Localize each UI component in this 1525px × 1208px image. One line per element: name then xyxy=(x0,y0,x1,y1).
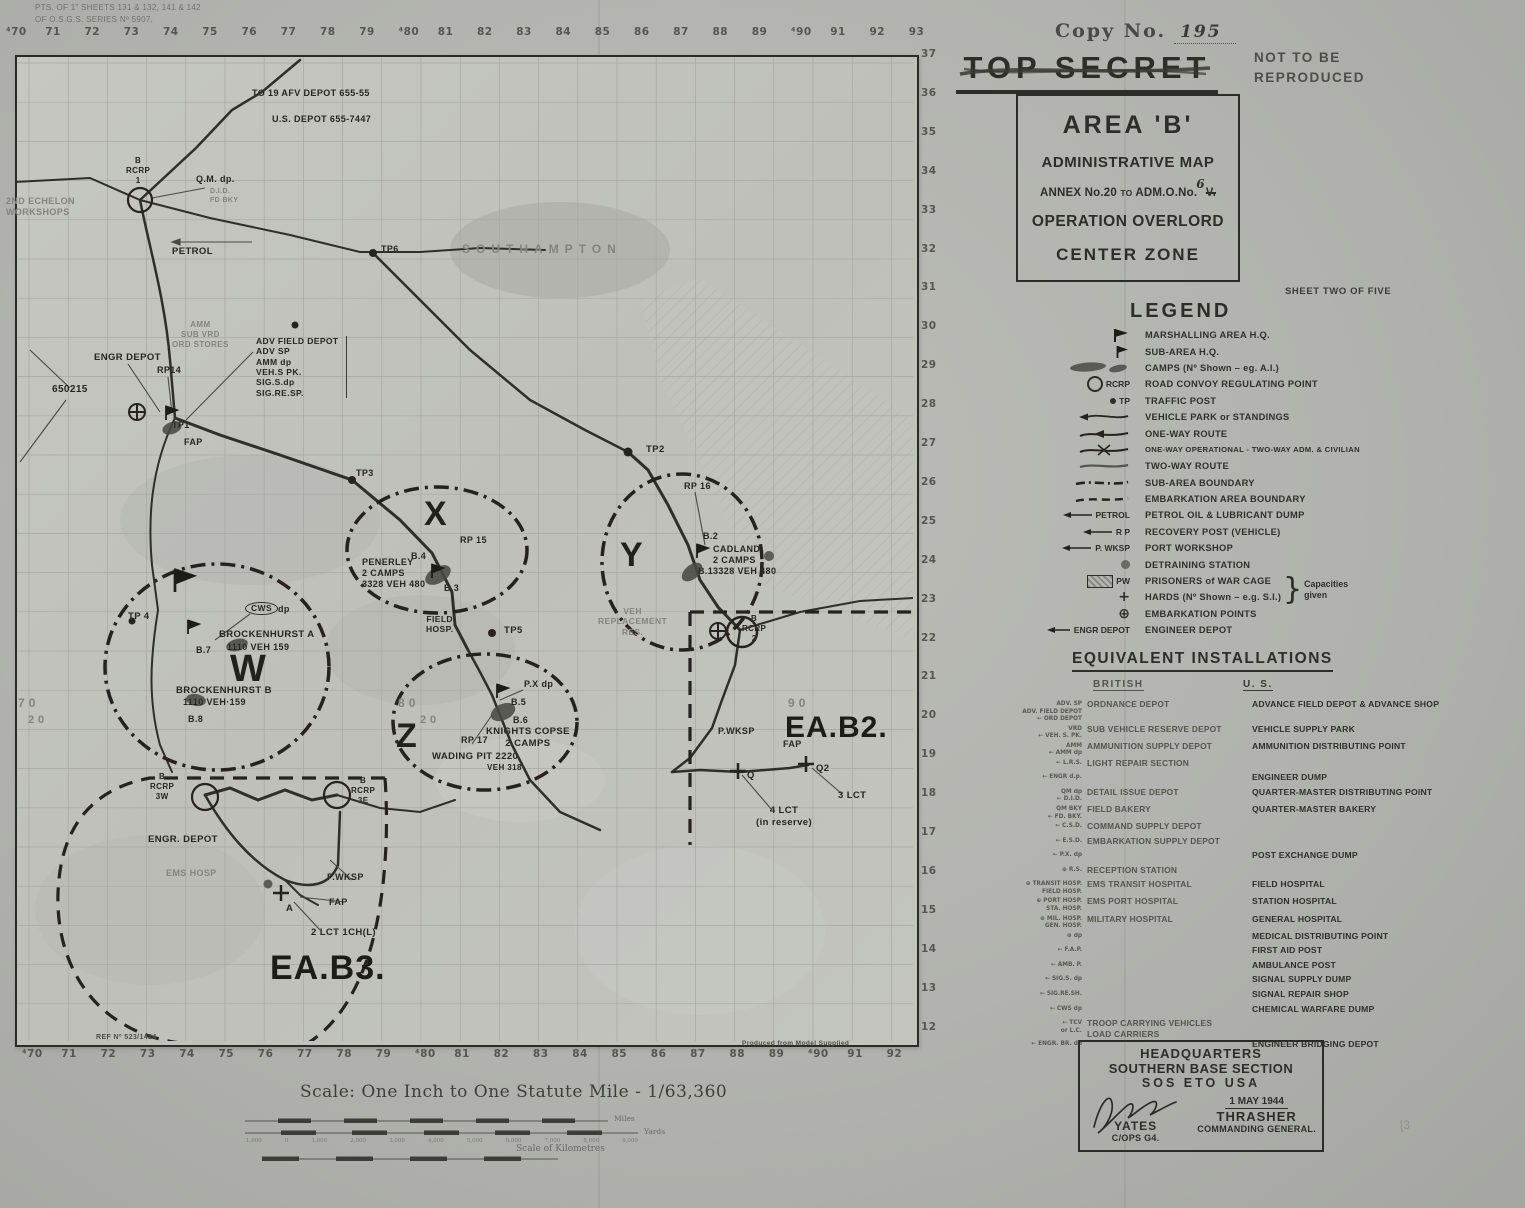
equiv-row: ← CWS dp CHEMICAL WARFARE DUMP xyxy=(972,1004,1450,1019)
legend-item: ONE-WAY ROUTE xyxy=(1020,425,1450,441)
equiv-us: MEDICAL DISTRIBUTING POINT xyxy=(1252,931,1457,942)
equiv-row: ⊕ MIL. HOSP. GEN. HOSP. MILITARY HOSPITA… xyxy=(972,914,1450,931)
copy-label: Copy No. xyxy=(1055,20,1166,42)
zone-line: CENTER ZONE xyxy=(1056,245,1200,265)
equiv-british: TROOP CARRYING VEHICLES LOAD CARRIERS xyxy=(1087,1018,1247,1039)
equiv-symbol: ADV. SP ADV. FIELD DEPOT ← ORD DEPOT xyxy=(972,699,1082,724)
yard-tick: 9,000 xyxy=(622,1138,638,1144)
equiv-row: ← P.X. dp POST EXCHANGE DUMP xyxy=(972,850,1450,865)
grid-number: 81 xyxy=(438,26,454,38)
equivalents-col-british: BRITISH xyxy=(1093,679,1144,691)
grid-number: 81 xyxy=(454,1048,470,1060)
equiv-us: POST EXCHANGE DUMP xyxy=(1252,850,1457,861)
equiv-row: ← L.R.S. LIGHT REPAIR SECTION xyxy=(972,758,1450,773)
legend-label: ROAD CONVOY REGULATING POINT xyxy=(1145,379,1318,389)
grid-number: 77 xyxy=(297,1048,313,1060)
scale-title: Scale: One Inch to One Statute Mile - 1/… xyxy=(300,1082,727,1102)
legend-sym-text: ENGR DEPOT xyxy=(1074,625,1130,635)
grid-number: 78 xyxy=(336,1048,352,1060)
grid-number: 77 xyxy=(281,26,297,38)
equiv-british: MILITARY HOSPITAL xyxy=(1087,914,1247,925)
legend-label: RECOVERY POST (VEHICLE) xyxy=(1145,527,1281,537)
legend-sym-text: P. WKSP xyxy=(1095,543,1130,553)
grid-number: 82 xyxy=(494,1048,510,1060)
legend-label: VEHICLE PARK or STANDINGS xyxy=(1145,412,1290,422)
grid-number: 17 xyxy=(921,826,937,838)
annex-to: TO xyxy=(1120,188,1132,198)
yard-tick: 3,000 xyxy=(389,1138,405,1144)
equivalents-heading: EQUIVALENT INSTALLATIONS xyxy=(1072,650,1333,672)
grid-number: 92 xyxy=(887,1048,903,1060)
yard-tick: 2,000 xyxy=(350,1138,366,1144)
grid-number: 71 xyxy=(45,26,61,38)
grid-number: 28 xyxy=(921,398,937,410)
grid-number: 12 xyxy=(921,1021,937,1033)
sheet-note: SHEET TWO OF FIVE xyxy=(1285,286,1391,297)
legend-sym-text: PW xyxy=(1116,576,1130,586)
vehicle-park-icon xyxy=(1078,411,1130,423)
grid-number: 37 xyxy=(921,48,937,60)
grid-number: 29 xyxy=(921,359,937,371)
equiv-row: ← C.S.D. COMMAND SUPPLY DEPOT xyxy=(972,821,1450,836)
embarkation-boundary-icon xyxy=(1074,494,1130,504)
equiv-symbol: QM dp ← D.I.D. xyxy=(972,787,1082,804)
grid-number: 34 xyxy=(921,165,937,177)
equiv-british: AMMUNITION SUPPLY DEPOT xyxy=(1087,741,1247,752)
legend-item: MARSHALLING AREA H.Q. xyxy=(1020,327,1450,343)
equiv-us: AMBULANCE POST xyxy=(1252,960,1457,971)
equiv-us: SIGNAL REPAIR SHOP xyxy=(1252,989,1457,1000)
grid-number: 19 xyxy=(921,748,937,760)
legend-label: ENGINEER DEPOT xyxy=(1145,625,1232,635)
equiv-row: ← SIG.RE.SH. SIGNAL REPAIR SHOP xyxy=(972,989,1450,1004)
legend-item: VEHICLE PARK or STANDINGS xyxy=(1020,409,1450,425)
equiv-row: AMM ← AMM dp AMMUNITION SUPPLY DEPOT AMM… xyxy=(972,741,1450,758)
petrol-arrow-icon xyxy=(1063,510,1093,520)
grid-number: 79 xyxy=(376,1048,392,1060)
embarkation-point-icon: ⊕ xyxy=(1118,606,1130,622)
yard-tick: 4,000 xyxy=(428,1138,444,1144)
legend-label: ONE-WAY OPERATIONAL - TWO-WAY ADM. & CIV… xyxy=(1145,445,1360,454)
equiv-british: SUB VEHICLE RESERVE DEPOT xyxy=(1087,724,1247,735)
signature-scribble xyxy=(1086,1087,1181,1137)
equivalents-col-us: U. S. xyxy=(1243,679,1273,691)
grid-number: 35 xyxy=(921,126,937,138)
yard-tick: 7,000 xyxy=(545,1138,561,1144)
map-label: OF O.S.G.S. SERIES Nº 5907, xyxy=(35,15,153,25)
legend-item: SUB-AREA BOUNDARY xyxy=(1020,475,1450,491)
yard-tick: 0 xyxy=(285,1138,289,1144)
grid-number: 88 xyxy=(729,1048,745,1060)
legend-item: R P RECOVERY POST (VEHICLE) xyxy=(1020,524,1450,540)
equiv-row: ⊕ TRANSIT HOSP. FIELD HOSP. EMS TRANSIT … xyxy=(972,879,1450,896)
grid-number: 26 xyxy=(921,476,937,488)
hards-plus-icon: + xyxy=(1118,589,1130,605)
grid-number: 23 xyxy=(921,593,937,605)
map-subtitle: ADMINISTRATIVE MAP xyxy=(1042,154,1215,171)
legend-label: DETRAINING STATION xyxy=(1145,560,1250,570)
equiv-british: EMS TRANSIT HOSPITAL xyxy=(1087,879,1247,890)
equiv-row: ← E.S.D. EMBARKATION SUPPLY DEPOT xyxy=(972,836,1450,851)
operation-line: OPERATION OVERLORD xyxy=(1032,213,1224,231)
equiv-symbol: AMM ← AMM dp xyxy=(972,741,1082,758)
signature-area: YATES C/OPS G4. xyxy=(1080,1093,1191,1133)
yard-tick: 1,000 xyxy=(311,1138,327,1144)
equiv-us: FIELD HOSPITAL xyxy=(1252,879,1457,890)
scale-miles-label: Miles xyxy=(614,1114,635,1123)
grid-number: ⁴70 xyxy=(6,26,27,38)
grid-number: 25 xyxy=(921,515,937,527)
legend-label: EMBARKATION AREA BOUNDARY xyxy=(1145,494,1306,504)
grid-number: 89 xyxy=(752,26,768,38)
yard-tick: 8,000 xyxy=(583,1138,599,1144)
sub-area-boundary-icon xyxy=(1074,478,1130,488)
not-line2: REPRODUCED xyxy=(1254,68,1365,88)
equiv-us: AMMUNITION DISTRIBUTING POINT xyxy=(1252,741,1457,752)
engineer-depot-arrow-icon xyxy=(1047,625,1071,635)
legend-label: EMBARKATION POINTS xyxy=(1145,609,1257,619)
cg-name: THRASHER xyxy=(1191,1109,1322,1124)
legend-item: SUB-AREA H.Q. xyxy=(1020,343,1450,359)
legend-item: P. WKSP PORT WORKSHOP xyxy=(1020,540,1450,556)
equiv-symbol: ← SIG.S. dp xyxy=(972,974,1082,984)
grid-number: 22 xyxy=(921,632,937,644)
equiv-british: DETAIL ISSUE DEPOT xyxy=(1087,787,1247,798)
equiv-symbol: ⊕ R.S. xyxy=(972,865,1082,875)
grid-number: 20 xyxy=(921,709,937,721)
grid-number: 18 xyxy=(921,787,937,799)
legend-label: TWO-WAY ROUTE xyxy=(1145,461,1229,471)
annex-line: ANNEX No.20 TO ADM.O.No.6V. xyxy=(1040,185,1216,199)
one-way-operational-icon xyxy=(1078,444,1130,456)
grid-number: 91 xyxy=(830,26,846,38)
equiv-table: ADV. SP ADV. FIELD DEPOT ← ORD DEPOT ORD… xyxy=(972,699,1450,1054)
one-way-route-icon xyxy=(1078,428,1130,440)
equiv-symbol: ← E.S.D. xyxy=(972,836,1082,846)
grid-number: 36 xyxy=(921,87,937,99)
equiv-row: ⊕ dp MEDICAL DISTRIBUTING POINT xyxy=(972,931,1450,946)
sub-area-flag-icon xyxy=(1115,344,1130,359)
legend-item: CAMPS (Nº Shown – eg. A.I.) xyxy=(1020,360,1450,376)
legend-sym-text: R P xyxy=(1116,527,1130,537)
equiv-row: ⊕ PORT HOSP. STA. HOSP. EMS PORT HOSPITA… xyxy=(972,896,1450,913)
equiv-british: EMBARKATION SUPPLY DEPOT xyxy=(1087,836,1247,847)
equiv-row: QM BKY ← FD. BKY. FIELD BAKERY QUARTER-M… xyxy=(972,804,1450,821)
grid-number: 93 xyxy=(909,26,925,38)
equiv-british: EMS PORT HOSPITAL xyxy=(1087,896,1247,907)
equiv-symbol: ⊕ MIL. HOSP. GEN. HOSP. xyxy=(972,914,1082,931)
grid-number: ⁴80 xyxy=(399,26,420,38)
legend-label: HARDS (Nº Shown – e.g. S.I.) xyxy=(1145,592,1281,602)
legend-list: MARSHALLING AREA H.Q. SUB-AREA H.Q. CAMP… xyxy=(1020,327,1450,638)
capacities-note: } Capacities given xyxy=(1283,572,1348,607)
equiv-symbol: ← TCV or L.C. xyxy=(972,1018,1082,1035)
legend-item: DETRAINING STATION xyxy=(1020,556,1450,572)
not-line1: NOT TO BE xyxy=(1254,48,1365,68)
legend-sym-text: TP xyxy=(1119,396,1130,406)
legend-sym-text: PETROL xyxy=(1096,510,1130,520)
equiv-us: SIGNAL SUPPLY DUMP xyxy=(1252,974,1457,985)
legend-item: + HARDS (Nº Shown – e.g. S.I.) xyxy=(1020,589,1450,605)
grid-number: 87 xyxy=(673,26,689,38)
equiv-us: FIRST AID POST xyxy=(1252,945,1457,956)
equiv-row: ⊕ R.S. RECEPTION STATION xyxy=(972,865,1450,880)
grid-number: 31 xyxy=(921,281,937,293)
hq-line1: HEADQUARTERS xyxy=(1080,1046,1322,1061)
equiv-us: GENERAL HOSPITAL xyxy=(1252,914,1457,925)
equiv-symbol: ← ENGR. BR. dp xyxy=(972,1039,1082,1049)
grid-number: 74 xyxy=(163,26,179,38)
equiv-british: COMMAND SUPPLY DEPOT xyxy=(1087,821,1247,832)
equiv-british: ORDNANCE DEPOT xyxy=(1087,699,1247,710)
grid-number: 78 xyxy=(320,26,336,38)
hq-box: HEADQUARTERS SOUTHERN BASE SECTION SOS E… xyxy=(1078,1040,1324,1152)
grid-number: 84 xyxy=(556,26,572,38)
grid-number: 14 xyxy=(921,943,937,955)
grid-number: 83 xyxy=(516,26,532,38)
grid-number: 84 xyxy=(572,1048,588,1060)
legend-label: PORT WORKSHOP xyxy=(1145,543,1233,553)
hq-date: 1 MAY 1944 xyxy=(1225,1096,1288,1109)
title-box: AREA 'B' ADMINISTRATIVE MAP ANNEX No.20 … xyxy=(1016,94,1240,282)
equiv-us: VEHICLE SUPPLY PARK xyxy=(1252,724,1457,735)
grid-number: 92 xyxy=(870,26,886,38)
grid-number: 30 xyxy=(921,320,937,332)
grid-number: 83 xyxy=(533,1048,549,1060)
legend-item: EMBARKATION AREA BOUNDARY xyxy=(1020,491,1450,507)
camps-icon xyxy=(1068,361,1130,374)
scale-km-label: Scale of Kilometres xyxy=(516,1144,605,1154)
equiv-row: QM dp ← D.I.D. DETAIL ISSUE DEPOT QUARTE… xyxy=(972,787,1450,804)
grid-number: 82 xyxy=(477,26,493,38)
grid-number: 88 xyxy=(713,26,729,38)
grid-number: 75 xyxy=(202,26,218,38)
grid-number: 76 xyxy=(258,1048,274,1060)
copy-number: 195 xyxy=(1174,22,1236,44)
grid-number: 85 xyxy=(612,1048,628,1060)
equiv-symbol: ← AMB. P. xyxy=(972,960,1082,970)
legend-item: PETROL PETROL OIL & LUBRICANT DUMP xyxy=(1020,507,1450,523)
grid-number: ⁴80 xyxy=(415,1048,436,1060)
equiv-british: RECEPTION STATION xyxy=(1087,865,1247,876)
grid-number: 73 xyxy=(124,26,140,38)
legend-item: TWO-WAY ROUTE xyxy=(1020,458,1450,474)
annex-struck-v: V. xyxy=(1206,187,1216,199)
grid-number: 16 xyxy=(921,865,937,877)
equiv-us: ENGINEER DUMP xyxy=(1252,772,1457,783)
equiv-symbol: ← L.R.S. xyxy=(972,758,1082,768)
equiv-row: ADV. SP ADV. FIELD DEPOT ← ORD DEPOT ORD… xyxy=(972,699,1450,724)
map-label: PTS. OF 1" SHEETS 131 & 132, 141 & 142 xyxy=(35,3,201,13)
equiv-row: ← AMB. P. AMBULANCE POST xyxy=(972,960,1450,975)
legend-item: RCRP ROAD CONVOY REGULATING POINT xyxy=(1020,376,1450,392)
equiv-symbol: ← CWS dp xyxy=(972,1004,1082,1014)
grid-number: 33 xyxy=(921,204,937,216)
equiv-symbol: ⊕ TRANSIT HOSP. FIELD HOSP. xyxy=(972,879,1082,896)
annex-handwritten-6: 6 xyxy=(1196,177,1205,191)
legend-heading: LEGEND xyxy=(1130,300,1231,323)
not-to-be-reproduced: NOT TO BE REPRODUCED xyxy=(1254,48,1365,89)
grid-number: 79 xyxy=(359,26,375,38)
grid-number: 86 xyxy=(634,26,650,38)
equiv-us: QUARTER-MASTER DISTRIBUTING POINT xyxy=(1252,787,1457,798)
equiv-symbol: QM BKY ← FD. BKY. xyxy=(972,804,1082,821)
tp-dot-icon xyxy=(1110,398,1116,404)
equiv-symbol: ← P.X. dp xyxy=(972,850,1082,860)
grid-number: 13 xyxy=(921,982,937,994)
equiv-symbol: ← C.S.D. xyxy=(972,821,1082,831)
grid-number: ⁴90 xyxy=(791,26,812,38)
grid-number: 71 xyxy=(61,1048,77,1060)
grid-number: 76 xyxy=(242,26,258,38)
legend-label: CAMPS (Nº Shown – eg. A.I.) xyxy=(1145,363,1279,373)
pencil-mark: [3 xyxy=(1400,1118,1411,1133)
grid-number: 87 xyxy=(690,1048,706,1060)
equiv-symbol: ← ENGR d.p. xyxy=(972,772,1082,782)
annex-prefix: ANNEX No.20 xyxy=(1040,187,1117,199)
grid-number: 89 xyxy=(769,1048,785,1060)
capacities-text: Capacities given xyxy=(1304,579,1348,601)
grid-number: 73 xyxy=(140,1048,156,1060)
capacities-brace: } xyxy=(1283,572,1302,607)
grid-number: 32 xyxy=(921,243,937,255)
rcrp-circle-icon xyxy=(1087,376,1103,392)
grid-number: 27 xyxy=(921,437,937,449)
legend-item: ⊕ EMBARKATION POINTS xyxy=(1020,606,1450,622)
yard-tick: 6,000 xyxy=(506,1138,522,1144)
map-area xyxy=(15,55,919,1047)
legend-item: PW PRISONERS of WAR CAGE xyxy=(1020,573,1450,589)
scale-yards-label: Yards xyxy=(644,1127,665,1136)
grid-number: 15 xyxy=(921,904,937,916)
grid-number: 86 xyxy=(651,1048,667,1060)
legend-item: ONE-WAY OPERATIONAL - TWO-WAY ADM. & CIV… xyxy=(1020,442,1450,458)
strikethrough-scribble xyxy=(956,50,1218,100)
legend-label: ONE-WAY ROUTE xyxy=(1145,429,1227,439)
grid-number: ⁴70 xyxy=(22,1048,43,1060)
equiv-row: VRD ← VEH. S. PK. SUB VEHICLE RESERVE DE… xyxy=(972,724,1450,741)
legend-label: SUB-AREA BOUNDARY xyxy=(1145,478,1255,488)
detraining-station-icon xyxy=(1121,560,1130,569)
equiv-us: QUARTER-MASTER BAKERY xyxy=(1252,804,1457,815)
equiv-symbol: VRD ← VEH. S. PK. xyxy=(972,724,1082,741)
scale-yard-ticks: 1,00001,0002,0003,0004,0005,0006,0007,00… xyxy=(246,1138,638,1144)
equiv-row: ← TCV or L.C. TROOP CARRYING VEHICLES LO… xyxy=(972,1018,1450,1039)
legend-label: PETROL OIL & LUBRICANT DUMP xyxy=(1145,510,1305,520)
cg-title: COMMANDING GENERAL. xyxy=(1191,1124,1322,1134)
yard-tick: 1,000 xyxy=(246,1138,262,1144)
legend-label: TRAFFIC POST xyxy=(1145,396,1216,406)
yard-tick: 5,000 xyxy=(467,1138,483,1144)
equiv-row: ← SIG.S. dp SIGNAL SUPPLY DUMP xyxy=(972,974,1450,989)
equiv-row: ← F.A.P. FIRST AID POST xyxy=(972,945,1450,960)
legend-sym-text: RCRP xyxy=(1106,379,1130,389)
legend-label: SUB-AREA H.Q. xyxy=(1145,347,1219,357)
equiv-british: LIGHT REPAIR SECTION xyxy=(1087,758,1247,769)
equiv-us: STATION HOSPITAL xyxy=(1252,896,1457,907)
grid-number: 91 xyxy=(847,1048,863,1060)
grid-number: 72 xyxy=(85,26,101,38)
equiv-symbol: ← F.A.P. xyxy=(972,945,1082,955)
marshalling-flag-icon xyxy=(1112,327,1130,343)
top-secret-stamp: TOP SECRET xyxy=(956,50,1218,94)
grid-number: ⁴90 xyxy=(808,1048,829,1060)
equiv-symbol: ⊕ dp xyxy=(972,931,1082,941)
grid-number: 75 xyxy=(219,1048,235,1060)
map-title: AREA 'B' xyxy=(1063,111,1194,140)
grid-number: 72 xyxy=(101,1048,117,1060)
grid-number: 24 xyxy=(921,554,937,566)
equiv-british: FIELD BAKERY xyxy=(1087,804,1247,815)
equiv-us: CHEMICAL WARFARE DUMP xyxy=(1252,1004,1457,1015)
hq-line2: SOUTHERN BASE SECTION xyxy=(1080,1061,1322,1076)
legend-label: PRISONERS of WAR CAGE xyxy=(1145,576,1271,586)
legend-item: ENGR DEPOT ENGINEER DEPOT xyxy=(1020,622,1450,638)
equiv-symbol: ← SIG.RE.SH. xyxy=(972,989,1082,999)
annex-mid: ADM.O.No. xyxy=(1135,187,1197,199)
pw-cage-icon xyxy=(1087,575,1113,588)
two-way-route-icon xyxy=(1078,460,1130,472)
legend-label: MARSHALLING AREA H.Q. xyxy=(1145,330,1270,340)
equiv-symbol: ⊕ PORT HOSP. STA. HOSP. xyxy=(972,896,1082,913)
equiv-row: ← ENGR d.p. ENGINEER DUMP xyxy=(972,772,1450,787)
grid-number: 74 xyxy=(179,1048,195,1060)
copy-line: Copy No.195 xyxy=(1055,20,1236,42)
scanned-map-sheet: PTS. OF 1" SHEETS 131 & 132, 141 & 142OF… xyxy=(0,0,1525,1208)
port-workshop-arrow-icon xyxy=(1062,543,1092,553)
equiv-us: ADVANCE FIELD DEPOT & ADVANCE SHOP xyxy=(1252,699,1457,710)
legend-item: TP TRAFFIC POST xyxy=(1020,393,1450,409)
rp-arrow-icon xyxy=(1083,527,1113,537)
grid-number: 21 xyxy=(921,670,937,682)
